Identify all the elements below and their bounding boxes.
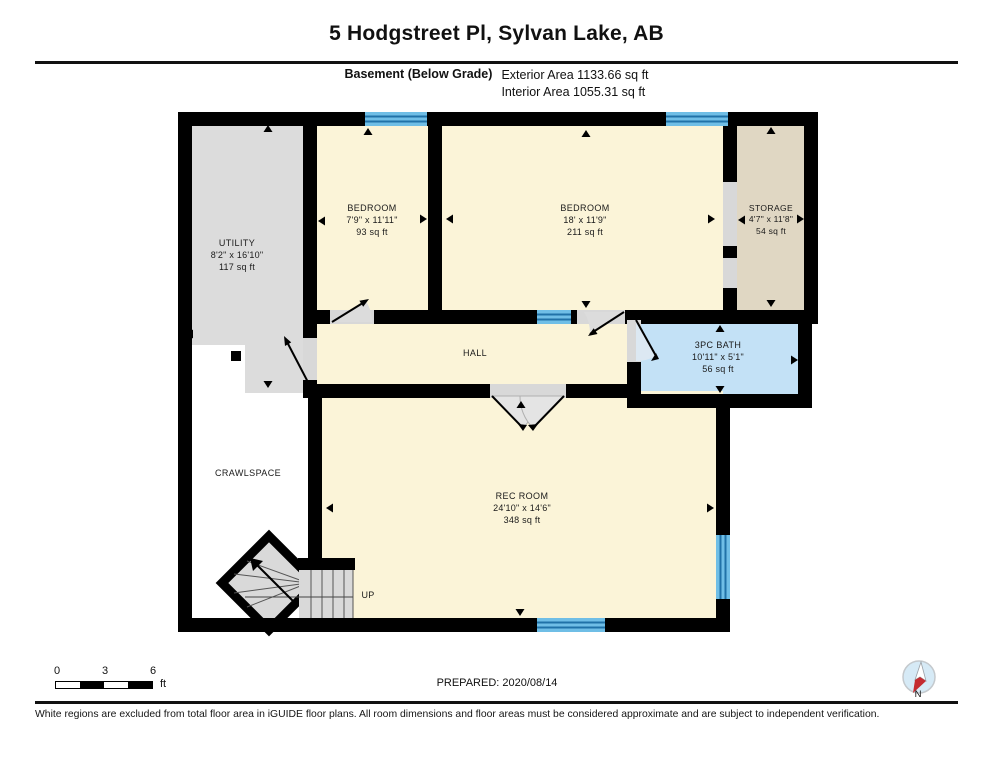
storage-opening: [723, 182, 737, 246]
wall: [627, 310, 812, 324]
wall: [178, 618, 730, 632]
prepared-date: PREPARED: 2020/08/14: [377, 677, 617, 689]
room-label-bath: 3PC BATH 10'11" x 5'1" 56 sq ft: [692, 339, 744, 375]
wall: [178, 112, 192, 632]
window: [537, 310, 571, 324]
storage-opening: [723, 258, 737, 288]
scale-unit: ft: [160, 678, 166, 690]
room-label-crawlspace: CRAWLSPACE: [215, 467, 281, 479]
footer-divider: [35, 701, 958, 704]
compass-north-label: N: [906, 689, 930, 700]
window: [537, 618, 605, 632]
window: [716, 535, 730, 599]
door-opening: [303, 338, 317, 380]
utility-floor: [185, 119, 310, 345]
stair-run: [299, 570, 353, 618]
room-label-storage: STORAGE 4'7" x 11'8" 54 sq ft: [749, 203, 793, 237]
scale-tick-0: 0: [54, 665, 60, 677]
room-label-hall: HALL: [463, 347, 487, 359]
floorplan-page: 5 Hodgstreet Pl, Sylvan Lake, AB Basemen…: [0, 0, 993, 768]
wall: [308, 384, 640, 398]
window: [666, 112, 728, 126]
window: [365, 112, 427, 126]
disclaimer-text: White regions are excluded from total fl…: [35, 709, 965, 720]
wall: [798, 312, 812, 408]
wall-stub: [231, 351, 241, 361]
wall: [303, 112, 317, 338]
wall: [308, 390, 322, 568]
stairs-up-label: UP: [361, 589, 374, 601]
floor-plan-drawing: [0, 0, 993, 768]
room-label-utility: UTILITY 8'2" x 16'10" 117 sq ft: [211, 237, 264, 273]
scale-tick-6: 6: [150, 665, 156, 677]
scale-tick-3: 3: [102, 665, 108, 677]
room-label-bedroom-large: BEDROOM 18' x 11'9" 211 sq ft: [560, 202, 609, 238]
scale-bar-segments: [55, 681, 153, 689]
room-label-bedroom-small: BEDROOM 7'9" x 11'11" 93 sq ft: [346, 202, 397, 238]
room-label-rec-room: REC ROOM 24'10" x 14'6" 348 sq ft: [493, 490, 551, 526]
wall: [298, 558, 355, 570]
wall: [428, 112, 442, 324]
wall: [804, 112, 818, 324]
